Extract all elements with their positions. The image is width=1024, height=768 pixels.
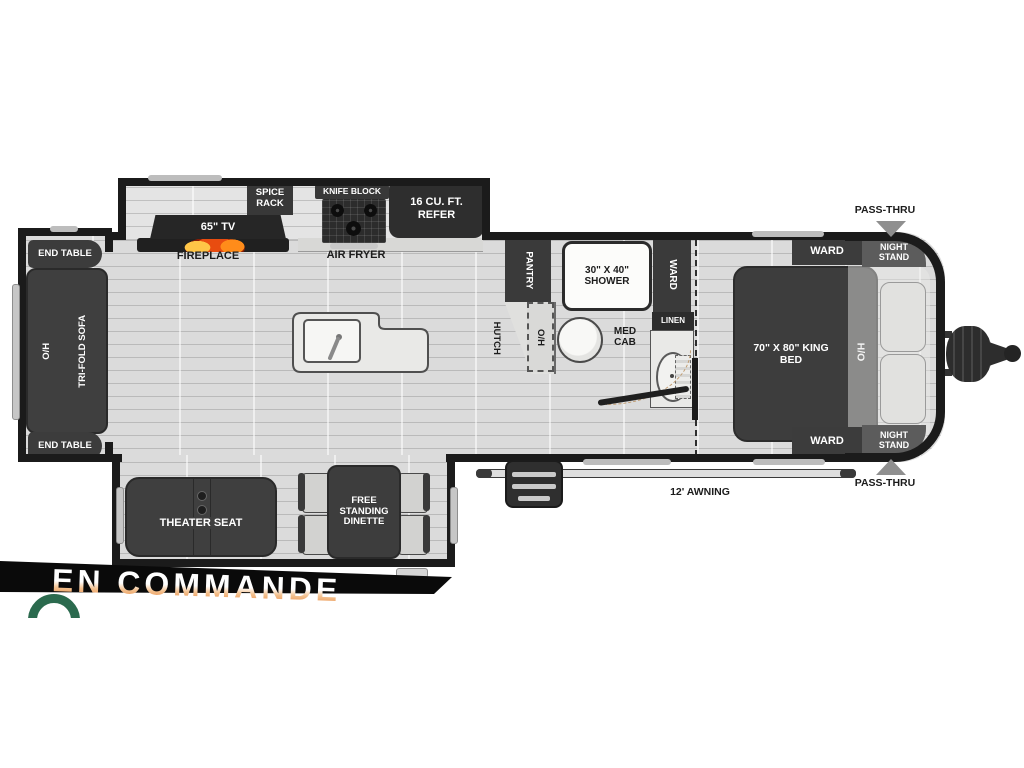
awning-end-cap [476, 469, 492, 478]
dinette-chair-back [423, 473, 430, 511]
tv: 65" TV [150, 215, 286, 239]
dinette-chair-back [298, 473, 305, 511]
status-banner-label: EN COMMANDE [51, 562, 424, 611]
air-fryer-label: AIR FRYER [316, 249, 396, 261]
med-cab-label: MED CAB [602, 326, 648, 348]
front-cap-wall [845, 232, 945, 462]
hitch-ball [1004, 345, 1021, 362]
spice-rack-label: SPICE RACK [247, 188, 293, 209]
burner [346, 221, 361, 236]
sofa-overhead-label: O/H [31, 270, 63, 432]
living-slide-handle-right [450, 487, 458, 544]
awning-label: 12' AWNING [640, 487, 760, 499]
bedroom-partition-dashed [695, 240, 697, 456]
hutch-label: HUTCH [488, 306, 504, 370]
bedroom-partition-solid [692, 358, 698, 420]
propane-cover [946, 326, 992, 382]
bath-wardrobe: WARD [653, 238, 691, 312]
step-tread [518, 496, 550, 501]
dinette-label: FREE STANDING DINETTE [333, 496, 395, 528]
burner [364, 204, 377, 217]
step-tread [512, 484, 556, 489]
pantry: PANTRY [505, 238, 551, 302]
living-slide-handle-left [116, 487, 124, 544]
spice-rack: SPICE RACK [247, 183, 293, 215]
knife-block: KNIFE BLOCK [315, 185, 389, 199]
hutch-overhead: O/H [527, 302, 554, 372]
linen-cabinet: LINEN [652, 312, 694, 330]
shower: 30" X 40" SHOWER [562, 241, 652, 311]
ward-label: WARD [666, 260, 677, 291]
dinette-chair-back [298, 515, 305, 553]
knife-block-label: KNIFE BLOCK [323, 187, 381, 197]
toilet [557, 317, 603, 363]
pass-thru-top-label: PASS-THRU [840, 205, 930, 217]
rear-slide-handle [12, 284, 20, 420]
entry-steps [505, 460, 563, 508]
kitchen-slide-wall-right [482, 178, 490, 240]
window-marker [753, 459, 825, 465]
dinette-chair-back [423, 515, 430, 553]
burner [331, 204, 344, 217]
refrigerator-label: 16 CU. FT. REFER [401, 196, 473, 221]
sofa-label: TRI-FOLD SOFA [63, 270, 103, 432]
theater-seat-label: THEATER SEAT [157, 517, 246, 529]
tri-fold-sofa: O/H TRI-FOLD SOFA [26, 268, 108, 434]
floorplan-image: END TABLE O/H TRI-FOLD SOFA END TABLE 65… [0, 0, 1024, 768]
window-marker [752, 231, 824, 237]
pantry-label: PANTRY [523, 251, 534, 289]
cooktop [322, 199, 386, 243]
cup-holder [197, 505, 207, 515]
kitchen-island [292, 312, 430, 374]
roof-marker [50, 226, 78, 232]
roof-marker [148, 175, 222, 181]
theater-seat: THEATER SEAT [125, 477, 277, 557]
shower-label: 30" X 40" SHOWER [572, 265, 642, 288]
tv-label: 65" TV [201, 221, 236, 233]
door-marker [583, 459, 671, 465]
kitchen-slide-wall-left [118, 178, 126, 240]
fireplace-label: FIREPLACE [158, 250, 258, 262]
end-table-label: END TABLE [38, 249, 92, 260]
linen-label: LINEN [661, 317, 685, 326]
end-table-label: END TABLE [38, 441, 92, 452]
rear-slide-wall-bottom [18, 454, 112, 462]
ward-label: WARD [810, 435, 844, 447]
refrigerator: 16 CU. FT. REFER [389, 179, 484, 238]
pass-thru-bottom-label: PASS-THRU [840, 478, 930, 490]
end-table-top: END TABLE [28, 240, 102, 268]
cup-holder [197, 491, 207, 501]
ward-label: WARD [810, 245, 844, 257]
awning-end-cap [840, 469, 856, 478]
step-tread [512, 472, 556, 477]
bed-label: 70" X 80" KING BED [735, 268, 847, 440]
dinette-table: FREE STANDING DINETTE [327, 465, 401, 559]
